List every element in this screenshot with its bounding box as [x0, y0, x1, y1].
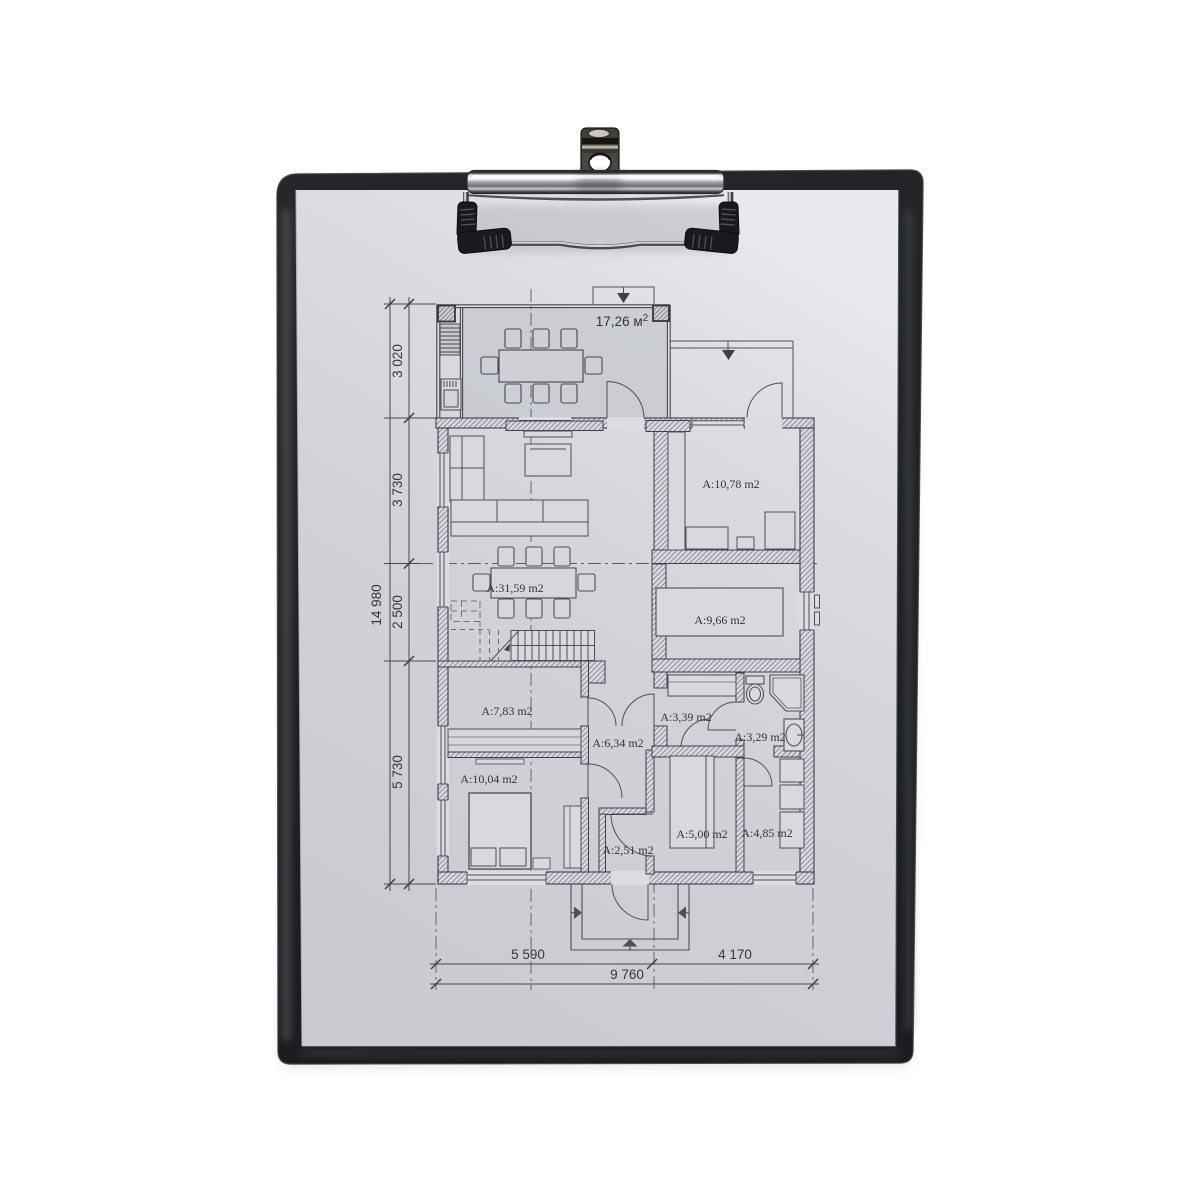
svg-text:3 730: 3 730 [390, 473, 405, 507]
svg-text:A:4,85 m2: A:4,85 m2 [741, 826, 792, 840]
svg-text:5 730: 5 730 [390, 755, 405, 789]
svg-text:14 980: 14 980 [369, 584, 384, 625]
svg-text:2 500: 2 500 [390, 595, 405, 629]
svg-text:17,26 м2: 17,26 м2 [596, 313, 649, 329]
svg-text:A:5,00 m2: A:5,00 m2 [676, 827, 727, 841]
svg-text:A:10,04 m2: A:10,04 m2 [460, 772, 517, 786]
svg-text:A:10,78 m2: A:10,78 m2 [702, 477, 759, 491]
svg-text:A:3,29 m2: A:3,29 m2 [734, 730, 785, 744]
svg-text:5 590: 5 590 [511, 947, 545, 962]
svg-text:4 170: 4 170 [718, 947, 752, 962]
svg-text:A:2,51 m2: A:2,51 m2 [602, 843, 653, 857]
svg-text:A:6,34 m2: A:6,34 m2 [592, 736, 643, 750]
svg-text:A:9,66 m2: A:9,66 m2 [694, 613, 745, 627]
svg-text:9 760: 9 760 [610, 967, 644, 982]
svg-text:A:3,39 m2: A:3,39 m2 [660, 710, 711, 724]
svg-text:A:7,83 m2: A:7,83 m2 [481, 704, 532, 718]
svg-text:3 020: 3 020 [390, 344, 405, 378]
svg-text:A:31,59 m2: A:31,59 m2 [486, 581, 543, 595]
